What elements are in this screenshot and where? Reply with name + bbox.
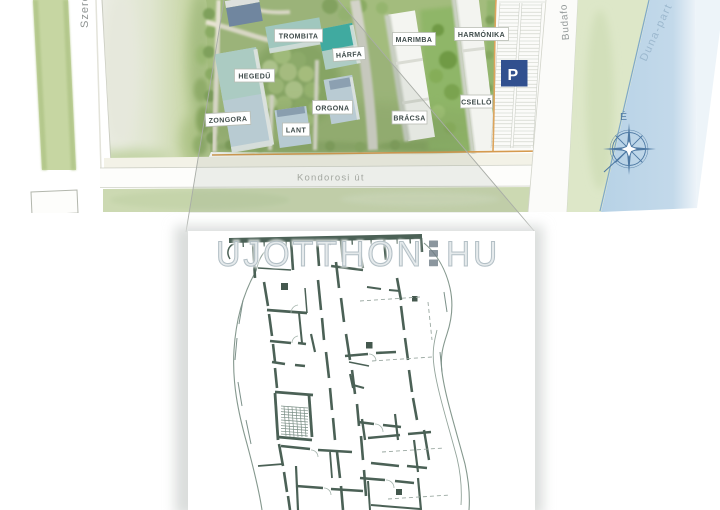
svg-text:CSELLŐ: CSELLŐ <box>461 98 492 107</box>
svg-text:MARIMBA: MARIMBA <box>396 37 433 44</box>
svg-text:HEGEDŰ: HEGEDŰ <box>238 72 270 81</box>
svg-text:É: É <box>620 110 627 123</box>
svg-text:HU: HU <box>446 235 500 274</box>
svg-text:TROMBITA: TROMBITA <box>279 34 319 41</box>
svg-text:LANT: LANT <box>286 128 307 135</box>
svg-text:BRÁCSA: BRÁCSA <box>393 114 425 123</box>
svg-text:ORGONA: ORGONA <box>316 106 350 113</box>
svg-text:Szerémi út: Szerémi út <box>79 0 91 28</box>
svg-text:P: P <box>508 67 519 84</box>
svg-text:HARMÓNIKA: HARMÓNIKA <box>458 30 505 39</box>
svg-text:UJOTTHON: UJOTTHON <box>216 235 424 274</box>
